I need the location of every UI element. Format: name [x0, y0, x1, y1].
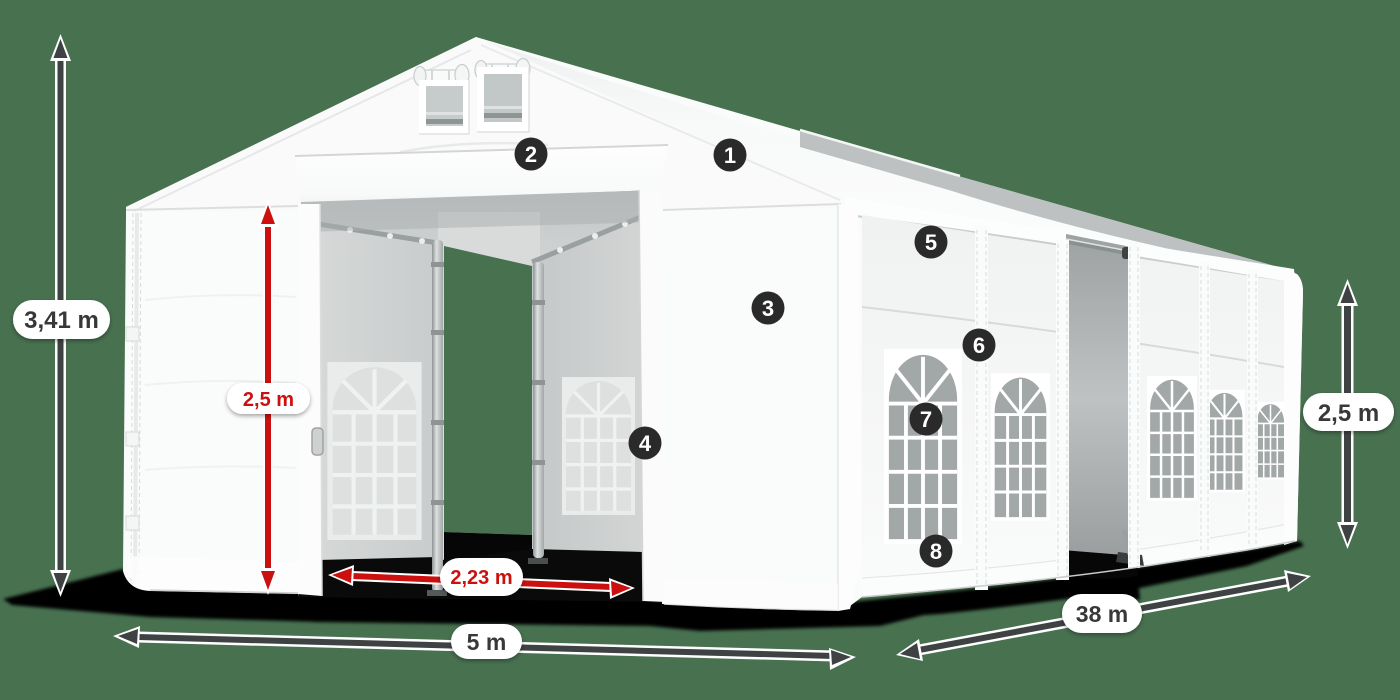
svg-text:7: 7	[920, 407, 932, 432]
svg-text:2: 2	[525, 142, 537, 167]
svg-text:4: 4	[639, 431, 652, 456]
svg-text:1: 1	[724, 143, 736, 168]
svg-text:6: 6	[973, 333, 985, 358]
svg-text:5: 5	[925, 230, 937, 255]
svg-text:38 m: 38 m	[1076, 601, 1128, 627]
svg-text:5 m: 5 m	[467, 629, 507, 655]
svg-text:3: 3	[762, 296, 774, 321]
svg-text:2,5 m: 2,5 m	[243, 389, 294, 411]
svg-text:2,5 m: 2,5 m	[1318, 400, 1379, 427]
svg-text:8: 8	[930, 539, 942, 564]
svg-text:3,41 m: 3,41 m	[24, 307, 99, 334]
svg-text:2,23 m: 2,23 m	[450, 567, 512, 589]
